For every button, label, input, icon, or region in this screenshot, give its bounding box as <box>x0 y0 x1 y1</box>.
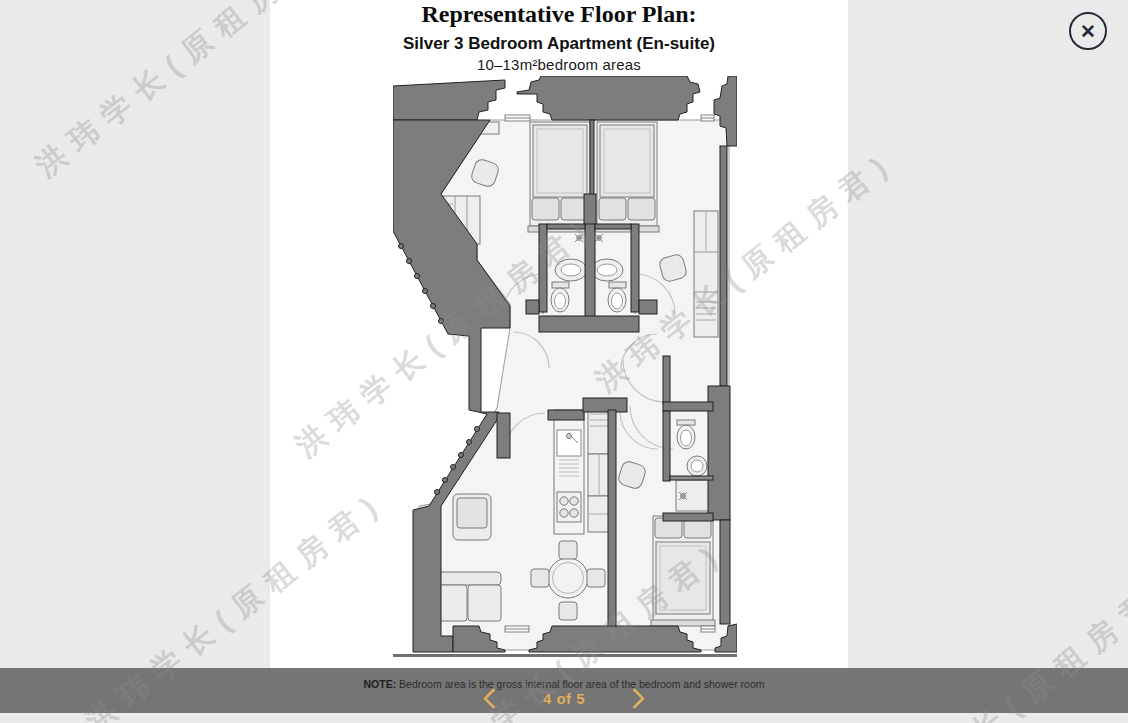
page-background: { "lightbox": { "close_icon": "✕", "note… <box>0 0 1128 723</box>
prev-button[interactable] <box>482 687 505 710</box>
pagination-nav: 4 of 5 <box>0 685 1128 711</box>
next-button[interactable] <box>623 687 646 710</box>
area-note: 10–13m²bedroom areas <box>270 56 848 73</box>
top-cornice-center <box>517 76 700 120</box>
close-icon: ✕ <box>1080 21 1096 42</box>
page-subtitle: Silver 3 Bedroom Apartment (En-suite) <box>270 34 848 54</box>
lightbox-panel: Representative Floor Plan: Silver 3 Bedr… <box>270 0 848 668</box>
bottom-bar: NOTE: Bedroom area is the gross internal… <box>0 668 1128 713</box>
close-button[interactable]: ✕ <box>1069 12 1107 50</box>
kitchen-units <box>554 404 610 534</box>
chevron-right-icon <box>624 687 645 708</box>
top-cornice-left <box>393 80 505 120</box>
page-title: Representative Floor Plan: <box>270 1 848 28</box>
pagination-label: 4 of 5 <box>543 690 585 707</box>
floor-plan-image <box>393 76 737 668</box>
chevron-left-icon <box>483 687 504 708</box>
bottom-cornice-center <box>529 626 701 652</box>
